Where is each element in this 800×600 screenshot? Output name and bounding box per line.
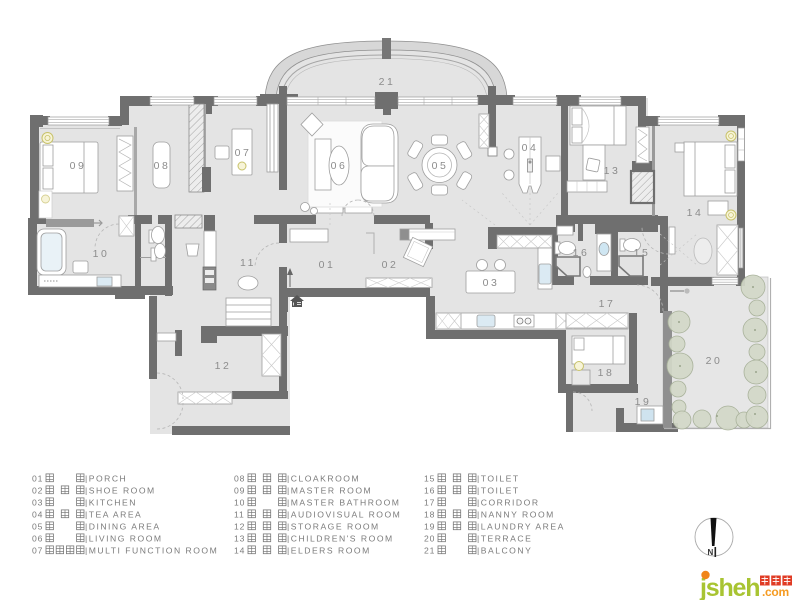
svg-text:02: 02 [382, 259, 399, 271]
svg-text:12: 12 [215, 360, 232, 372]
svg-text:08: 08 [234, 474, 245, 484]
svg-text:05: 05 [32, 522, 43, 532]
svg-text:|KITCHEN: |KITCHEN [85, 498, 137, 508]
svg-text:20: 20 [424, 534, 435, 544]
svg-text:05: 05 [432, 160, 449, 172]
svg-text:13: 13 [234, 534, 245, 544]
svg-text:|CORRIDOR: |CORRIDOR [477, 498, 540, 508]
svg-text:|PORCH: |PORCH [85, 474, 127, 484]
svg-text:21: 21 [379, 76, 396, 88]
svg-text:|TEA AREA: |TEA AREA [85, 510, 142, 520]
svg-text:21: 21 [424, 546, 435, 556]
svg-text:17: 17 [599, 298, 616, 310]
svg-text:|CHILDREN'S ROOM: |CHILDREN'S ROOM [287, 534, 394, 544]
svg-text:04: 04 [32, 510, 43, 520]
svg-text:08: 08 [154, 160, 171, 172]
svg-text:|LAUNDRY AREA: |LAUNDRY AREA [477, 522, 565, 532]
svg-text:20: 20 [706, 355, 723, 367]
svg-text:|NANNY ROOM: |NANNY ROOM [477, 510, 555, 520]
svg-text:|SHOE ROOM: |SHOE ROOM [85, 486, 156, 496]
svg-text:02: 02 [32, 486, 43, 496]
svg-text:|MASTER BATHROOM: |MASTER BATHROOM [287, 498, 400, 508]
svg-text:09: 09 [70, 160, 87, 172]
svg-text:03: 03 [32, 498, 43, 508]
svg-text:|AUDIOVISUAL ROOM: |AUDIOVISUAL ROOM [287, 510, 401, 520]
svg-text:10: 10 [93, 248, 110, 260]
svg-text:17: 17 [424, 498, 435, 508]
svg-text:19: 19 [635, 396, 652, 408]
svg-text:14: 14 [687, 207, 704, 219]
svg-text:04: 04 [522, 142, 539, 154]
svg-text:|BALCONY: |BALCONY [477, 546, 532, 556]
svg-text:07: 07 [32, 546, 43, 556]
svg-text:13: 13 [604, 165, 621, 177]
svg-text:|DINING AREA: |DINING AREA [85, 522, 161, 532]
svg-text:|CLOAKROOM: |CLOAKROOM [287, 474, 360, 484]
svg-text:07: 07 [235, 147, 252, 159]
svg-text:15: 15 [634, 247, 651, 259]
svg-text:14: 14 [234, 546, 245, 556]
svg-text:18: 18 [598, 367, 615, 379]
svg-text:06: 06 [331, 160, 348, 172]
svg-text:06: 06 [32, 534, 43, 544]
svg-text:|TOILET: |TOILET [477, 486, 520, 496]
svg-text:12: 12 [234, 522, 245, 532]
svg-text:|TOILET: |TOILET [477, 474, 520, 484]
svg-text:10: 10 [234, 498, 245, 508]
svg-text:|TERRACE: |TERRACE [477, 534, 532, 544]
svg-text:11: 11 [234, 510, 245, 520]
svg-text:N: N [708, 548, 714, 557]
svg-text:15: 15 [424, 474, 435, 484]
svg-text:11: 11 [240, 257, 256, 269]
svg-text:01: 01 [32, 474, 43, 484]
svg-text:|ELDERS ROOM: |ELDERS ROOM [287, 546, 371, 556]
svg-text:|STORAGE ROOM: |STORAGE ROOM [287, 522, 380, 532]
svg-text:.com: .com [762, 585, 789, 599]
svg-text:03: 03 [483, 277, 500, 289]
svg-text:|MASTER ROOM: |MASTER ROOM [287, 486, 372, 496]
svg-text:09: 09 [234, 486, 245, 496]
svg-text:01: 01 [319, 259, 336, 271]
svg-text:18: 18 [424, 510, 435, 520]
svg-text:16: 16 [424, 486, 435, 496]
svg-text:19: 19 [424, 522, 435, 532]
svg-text:|LIVING ROOM: |LIVING ROOM [85, 534, 163, 544]
svg-text:16: 16 [573, 247, 590, 259]
svg-text:|MULTI FUNCTION ROOM: |MULTI FUNCTION ROOM [85, 546, 218, 556]
